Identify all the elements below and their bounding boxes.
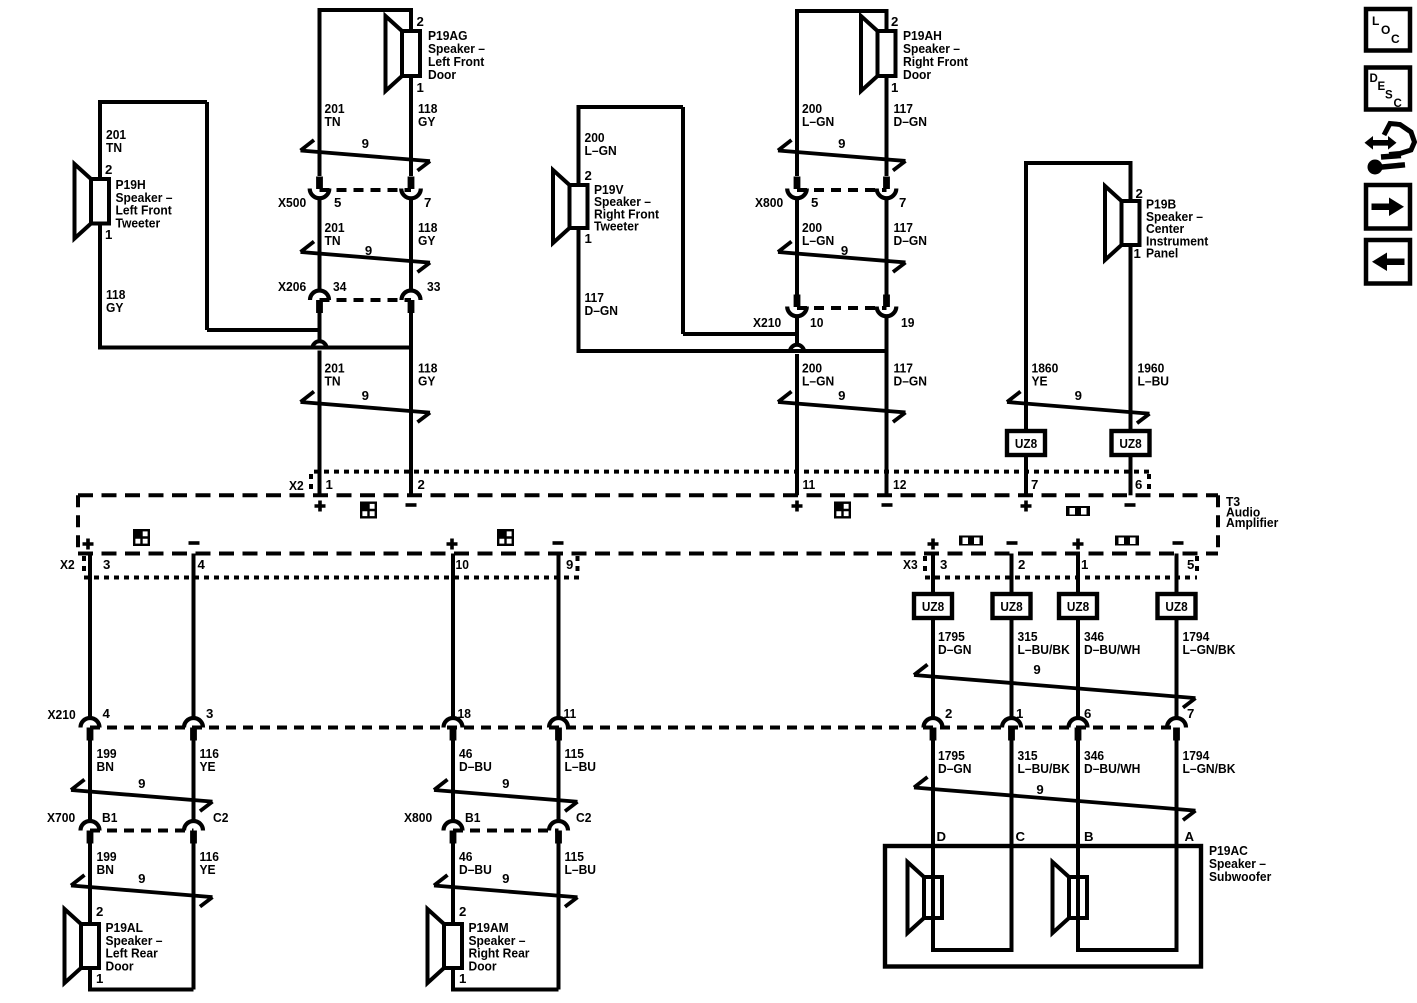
svg-text:GY: GY (418, 114, 436, 129)
svg-text:4: 4 (103, 706, 111, 721)
svg-text:UZ8: UZ8 (1119, 436, 1141, 451)
svg-text:3: 3 (206, 706, 213, 721)
svg-text:L–GN: L–GN (802, 114, 834, 129)
svg-text:UZ8: UZ8 (1067, 599, 1089, 614)
svg-text:L–GN/BK: L–GN/BK (1183, 642, 1236, 657)
svg-text:Subwoofer: Subwoofer (1209, 869, 1271, 884)
svg-text:GY: GY (418, 374, 436, 389)
svg-text:9: 9 (502, 776, 509, 791)
svg-text:1: 1 (1081, 557, 1088, 572)
svg-text:L–GN: L–GN (585, 143, 617, 158)
svg-text:2: 2 (417, 14, 424, 29)
svg-text:1: 1 (105, 227, 112, 242)
svg-text:5: 5 (1187, 557, 1194, 572)
svg-text:X500: X500 (278, 195, 306, 210)
svg-text:2: 2 (1018, 557, 1025, 572)
svg-text:C: C (1016, 829, 1026, 844)
svg-text:9: 9 (362, 136, 369, 151)
svg-text:Tweeter: Tweeter (594, 219, 639, 234)
svg-text:UZ8: UZ8 (1015, 436, 1037, 451)
svg-text:11: 11 (564, 706, 577, 721)
svg-text:L–GN: L–GN (802, 233, 834, 248)
svg-text:X206: X206 (278, 279, 306, 294)
svg-text:UZ8: UZ8 (922, 599, 944, 614)
svg-text:D–GN: D–GN (938, 761, 972, 776)
svg-text:B1: B1 (102, 810, 117, 825)
svg-text:11: 11 (803, 477, 816, 492)
svg-text:Tweeter: Tweeter (116, 215, 161, 230)
svg-text:L–GN/BK: L–GN/BK (1183, 761, 1236, 776)
svg-text:1: 1 (326, 477, 333, 492)
svg-text:D–GN: D–GN (894, 233, 928, 248)
svg-text:2: 2 (459, 904, 466, 919)
svg-text:D–BU: D–BU (459, 759, 492, 774)
svg-text:Door: Door (903, 67, 931, 82)
svg-text:TN: TN (325, 374, 341, 389)
svg-text:33: 33 (427, 279, 440, 294)
svg-text:X800: X800 (755, 195, 783, 210)
svg-text:O: O (1381, 23, 1390, 37)
svg-text:3: 3 (103, 557, 110, 572)
svg-text:X2: X2 (289, 478, 304, 493)
svg-text:C: C (1394, 98, 1402, 110)
svg-text:34: 34 (333, 279, 347, 294)
svg-text:2: 2 (105, 162, 112, 177)
svg-text:L–BU: L–BU (1138, 374, 1170, 389)
svg-text:YE: YE (200, 862, 216, 877)
svg-text:UZ8: UZ8 (1165, 599, 1187, 614)
svg-text:B: B (1084, 829, 1094, 844)
svg-text:9: 9 (138, 871, 145, 886)
svg-text:3: 3 (940, 557, 947, 572)
svg-text:X3: X3 (903, 557, 918, 572)
svg-text:D–BU: D–BU (459, 862, 492, 877)
svg-text:10: 10 (810, 315, 823, 330)
svg-text:1: 1 (585, 231, 592, 246)
svg-text:Door: Door (428, 67, 456, 82)
svg-text:X210: X210 (753, 315, 781, 330)
svg-text:YE: YE (200, 759, 216, 774)
svg-text:7: 7 (1031, 477, 1038, 492)
svg-text:YE: YE (1032, 374, 1048, 389)
svg-text:L–BU/BK: L–BU/BK (1018, 761, 1071, 776)
svg-text:A: A (1185, 829, 1195, 844)
svg-text:2: 2 (96, 904, 103, 919)
svg-text:2: 2 (945, 706, 952, 721)
svg-text:2: 2 (1136, 186, 1143, 201)
svg-text:D–GN: D–GN (938, 642, 972, 657)
svg-text:X2: X2 (60, 557, 75, 572)
svg-text:Amplifier: Amplifier (1226, 515, 1278, 530)
svg-text:1: 1 (891, 80, 898, 95)
svg-text:9: 9 (566, 557, 573, 572)
svg-text:D–BU/WH: D–BU/WH (1084, 642, 1140, 657)
svg-text:B1: B1 (465, 810, 480, 825)
svg-text:L–BU: L–BU (565, 862, 597, 877)
svg-text:Door: Door (106, 958, 134, 973)
svg-text:12: 12 (893, 477, 906, 492)
svg-text:UZ8: UZ8 (1000, 599, 1022, 614)
svg-text:5: 5 (811, 195, 818, 210)
svg-text:18: 18 (458, 706, 471, 721)
svg-text:X700: X700 (47, 810, 75, 825)
svg-text:9: 9 (841, 243, 848, 258)
svg-text:L: L (1372, 14, 1379, 28)
svg-text:D–GN: D–GN (894, 374, 928, 389)
svg-text:GY: GY (418, 233, 436, 248)
svg-text:9: 9 (365, 243, 372, 258)
svg-text:9: 9 (838, 388, 845, 403)
svg-text:TN: TN (106, 140, 122, 155)
svg-text:7: 7 (899, 195, 906, 210)
svg-text:2: 2 (418, 477, 425, 492)
svg-text:GY: GY (106, 300, 124, 315)
svg-text:X800: X800 (404, 810, 432, 825)
svg-text:1: 1 (96, 971, 103, 986)
svg-text:BN: BN (97, 759, 114, 774)
svg-text:5: 5 (334, 195, 341, 210)
svg-text:19: 19 (901, 315, 914, 330)
svg-text:L–BU: L–BU (565, 759, 597, 774)
svg-text:BN: BN (97, 862, 114, 877)
svg-text:9: 9 (838, 136, 845, 151)
svg-text:4: 4 (198, 557, 206, 572)
svg-text:7: 7 (424, 195, 431, 210)
svg-text:2: 2 (585, 168, 592, 183)
svg-text:TN: TN (325, 233, 341, 248)
svg-text:9: 9 (502, 871, 509, 886)
svg-text:7: 7 (1187, 706, 1194, 721)
svg-text:2: 2 (891, 14, 898, 29)
svg-text:10: 10 (456, 557, 469, 572)
svg-text:TN: TN (325, 114, 341, 129)
svg-text:C2: C2 (576, 810, 591, 825)
svg-text:9: 9 (362, 388, 369, 403)
svg-text:6: 6 (1135, 477, 1142, 492)
svg-text:D–GN: D–GN (894, 114, 928, 129)
svg-text:9: 9 (1036, 782, 1043, 797)
svg-text:D: D (937, 829, 947, 844)
svg-text:L–GN: L–GN (802, 374, 834, 389)
svg-text:9: 9 (1075, 388, 1082, 403)
svg-text:C: C (1391, 32, 1400, 46)
svg-text:D–BU/WH: D–BU/WH (1084, 761, 1140, 776)
svg-text:L–BU/BK: L–BU/BK (1018, 642, 1071, 657)
svg-text:9: 9 (1033, 662, 1040, 677)
svg-text:C2: C2 (213, 810, 228, 825)
svg-text:X210: X210 (48, 707, 76, 722)
svg-text:1: 1 (459, 971, 466, 986)
svg-text:1: 1 (417, 80, 424, 95)
svg-text:Door: Door (469, 958, 497, 973)
svg-text:1: 1 (1134, 246, 1141, 261)
svg-text:9: 9 (138, 776, 145, 791)
svg-text:Panel: Panel (1146, 246, 1178, 261)
svg-text:D–GN: D–GN (585, 303, 619, 318)
svg-text:S: S (1385, 90, 1393, 102)
